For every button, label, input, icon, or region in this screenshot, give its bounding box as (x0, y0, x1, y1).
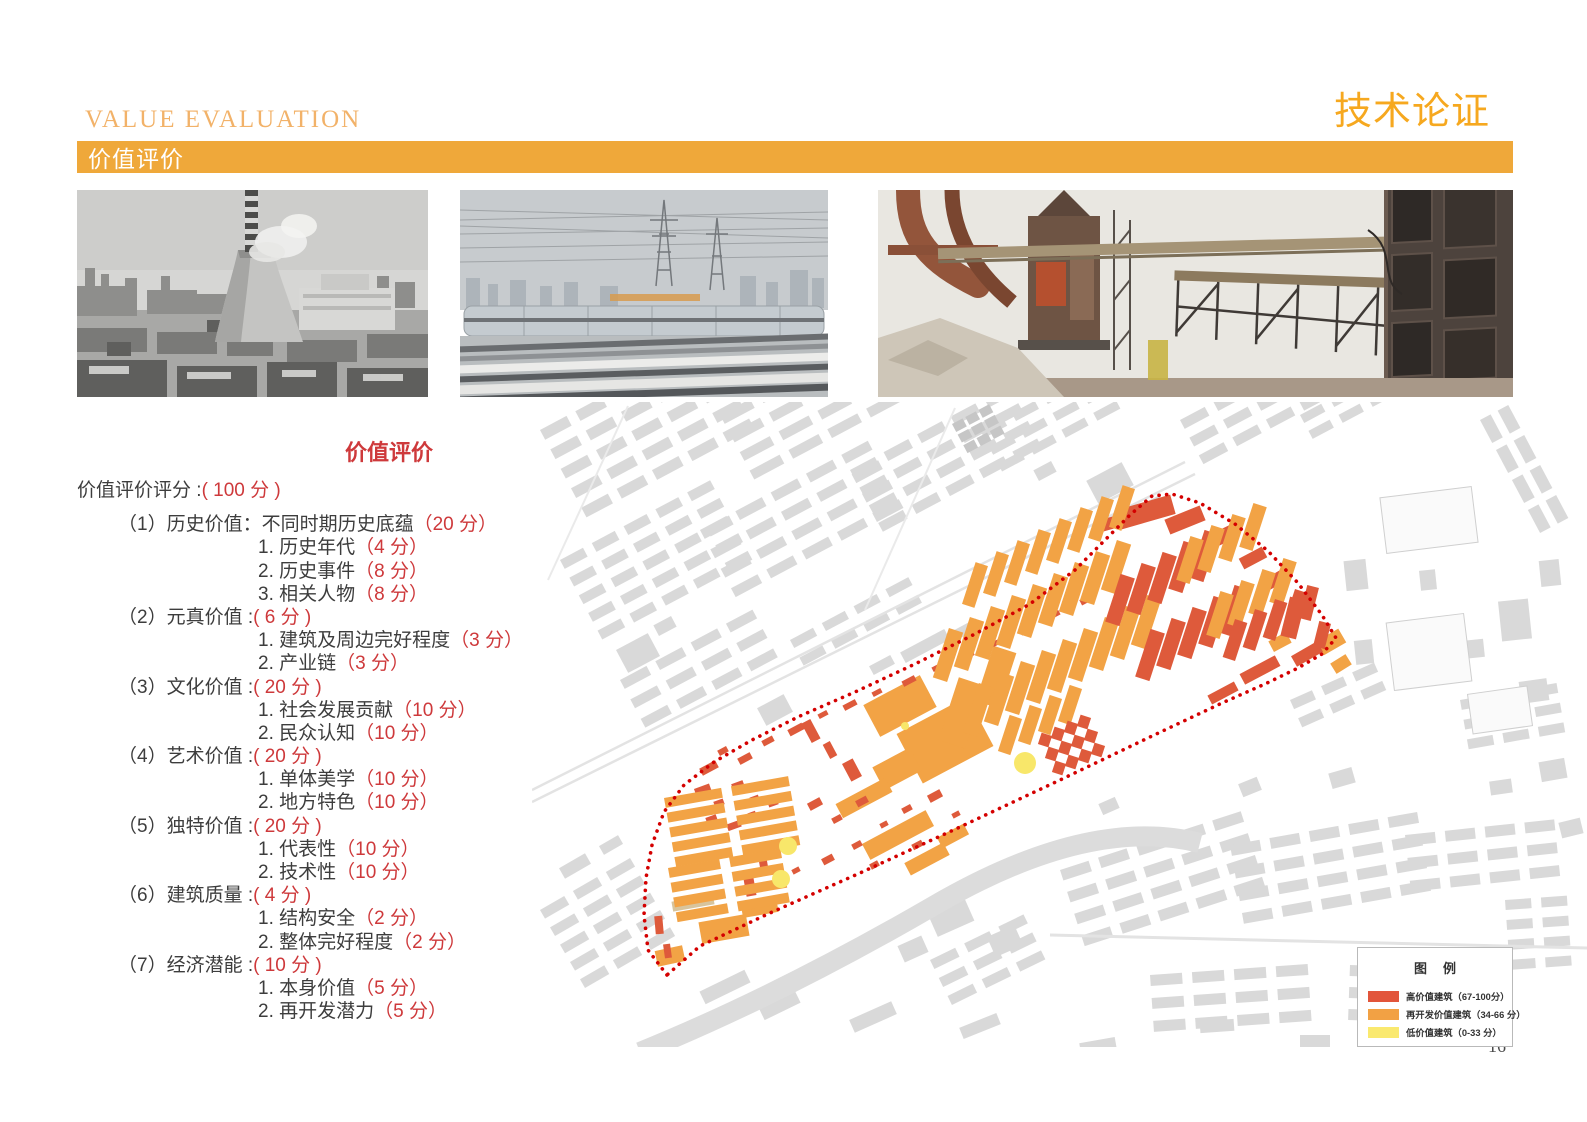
criteria-line-score: ( 20 分 ) (253, 677, 322, 698)
valued-building-strip (1091, 743, 1105, 758)
map-legend-title: 图例 (1358, 958, 1512, 977)
criteria-line-score: （5 分） (374, 1001, 447, 1022)
city-building (559, 853, 591, 878)
criteria-line-label: 1. 单体美学 (258, 769, 355, 790)
valued-building (901, 804, 913, 814)
criteria-line-score: ( 4 分 ) (253, 885, 311, 906)
criteria-line-label: （3）文化价值 : (118, 677, 253, 698)
valued-building (927, 789, 943, 803)
valued-building-strip (998, 715, 1022, 755)
slide-page: VALUE EVALUATION 技术论证 价值评价 (0, 0, 1587, 1122)
criteria-line: 2. 再开发潜力（5 分） (77, 1000, 523, 1023)
criteria-line: 1. 社会发展贡献（10 分） (77, 699, 523, 722)
legend-label: 再开发价值建筑（34-66 分） (1406, 1007, 1525, 1021)
criteria-title: 价值评价 (345, 435, 433, 467)
criteria-line-score: （4 分） (355, 537, 428, 558)
criteria-line: 2. 技术性（10 分） (77, 861, 523, 884)
valued-building (654, 916, 664, 935)
header-eyebrow: VALUE EVALUATION (85, 106, 361, 134)
valued-building (817, 710, 828, 719)
valued-building-strip (1052, 761, 1066, 776)
criteria-line-score: （8 分） (355, 584, 428, 605)
legend-color-swatch (1368, 1009, 1399, 1020)
city-building (1538, 758, 1567, 782)
city-building (1558, 818, 1583, 839)
low-value-building-marker (901, 722, 909, 730)
city-building (1539, 559, 1562, 587)
criteria-line-label: 1. 本身价值 (258, 978, 355, 999)
valued-building-strip (1067, 507, 1093, 553)
criteria-line: 2. 地方特色（10 分） (77, 791, 523, 814)
city-building (1354, 639, 1374, 665)
valued-building (823, 741, 838, 759)
valued-building-strip (1077, 715, 1091, 730)
city-block (540, 858, 675, 988)
city-open-block (1386, 614, 1472, 691)
city-block (1180, 402, 1329, 464)
valued-building (698, 914, 749, 944)
criteria-line-score: （3 分） (450, 630, 523, 651)
criteria-line: 3. 相关人物（8 分） (77, 583, 523, 606)
city-building (1419, 569, 1437, 591)
criteria-line-label: 2. 再开发潜力 (258, 1001, 374, 1022)
criteria-line-score: （10 分） (336, 839, 419, 860)
valued-building-strip (1046, 518, 1072, 564)
city-open-block (1380, 487, 1478, 554)
criteria-line: 2. 产业链（3 分） (77, 652, 523, 675)
criteria-line-label: 价值评价评分 : (77, 480, 202, 501)
criteria-line: 1. 本身价值（5 分） (77, 977, 523, 1000)
city-building (1200, 1019, 1235, 1033)
city-building (869, 655, 895, 675)
valued-building (737, 752, 753, 765)
city-building (849, 1001, 897, 1032)
city-building (959, 1013, 1001, 1039)
city-building (599, 835, 623, 855)
criteria-line-score: （3 分） (336, 653, 409, 674)
legend-label: 高价值建筑（67-100分） (1406, 989, 1509, 1003)
city-building (1489, 779, 1513, 796)
valued-building (807, 797, 823, 811)
valued-building-strip (1025, 529, 1051, 575)
criteria-line-score: （2 分） (355, 908, 428, 929)
map-legend-items: 高价值建筑（67-100分）再开发价值建筑（34-66 分）低价值建筑（0-33… (1358, 987, 1512, 1041)
criteria-line-score: ( 100 分 ) (202, 480, 281, 501)
valued-building (791, 866, 800, 874)
legend-row: 高价值建筑（67-100分） (1358, 987, 1512, 1005)
criteria-line-label: （1）历史价值：不同时期历史底蕴 (118, 514, 414, 535)
page-corner-title: 技术论证 (1334, 80, 1490, 135)
criteria-line-label: 2. 地方特色 (258, 792, 355, 813)
valued-building (851, 840, 863, 850)
criteria-line-score: （10 分） (355, 723, 438, 744)
low-value-building-marker (772, 870, 790, 888)
valued-building-strip (1084, 729, 1098, 744)
criteria-line-label: 1. 结构安全 (258, 908, 355, 929)
criteria-line-label: 1. 建筑及周边完好程度 (258, 630, 450, 651)
valued-building (801, 719, 820, 743)
criteria-line: 2. 民众认知（10 分） (77, 722, 523, 745)
criteria-line-score: ( 20 分 ) (253, 816, 322, 837)
valued-building (842, 699, 857, 711)
criteria-line: （2）元真价值 :( 6 分 ) (77, 606, 523, 629)
criteria-line-score: （8 分） (355, 561, 428, 582)
criteria-line-label: 1. 代表性 (258, 839, 336, 860)
criteria-line-score: （10 分） (336, 862, 419, 883)
criteria-line-label: 3. 相关人物 (258, 584, 355, 605)
city-block (540, 402, 754, 517)
rail-yard-illustration (460, 190, 828, 397)
section-banner-label: 价值评价 (88, 140, 184, 174)
city-building (616, 633, 660, 673)
valued-building-strip (1018, 705, 1042, 745)
valued-building (821, 854, 835, 866)
criteria-line: （6）建筑质量 :( 4 分 ) (77, 884, 523, 907)
valued-building-strip (1065, 755, 1079, 770)
valued-building-strip (1243, 609, 1268, 651)
city-building (1343, 559, 1368, 591)
photo-rail-yard (460, 190, 828, 397)
valued-building-strip (1071, 735, 1085, 750)
criteria-line: 价值评价评分 :( 100 分 ) (77, 479, 523, 502)
valued-building (1330, 654, 1352, 674)
legend-color-swatch (1368, 1027, 1399, 1038)
industrial-plant-illustration (878, 190, 1513, 397)
criteria-line-label: （4）艺术价值 : (118, 746, 253, 767)
city-building (1498, 599, 1532, 642)
legend-row: 低价值建筑（0-33 分） (1358, 1023, 1512, 1041)
valued-building (1207, 682, 1238, 705)
city-building (1033, 461, 1056, 481)
city-building (653, 616, 676, 636)
valued-building (879, 820, 888, 828)
criteria-line: 2. 整体完好程度（2 分） (77, 931, 523, 954)
valued-building (911, 840, 924, 850)
criteria-line-label: 2. 整体完好程度 (258, 932, 393, 953)
valued-building (761, 736, 774, 747)
criteria-line: （4）艺术价值 :( 20 分 ) (77, 745, 523, 768)
criteria-line: （7）经济潜能 :( 10 分 ) (77, 954, 523, 977)
legend-color-swatch (1368, 991, 1399, 1002)
city-block (1480, 405, 1568, 533)
valued-building-strip (1045, 747, 1059, 762)
valued-building (937, 824, 969, 849)
city-block (1300, 402, 1424, 439)
map-legend: 图例 高价值建筑（67-100分）再开发价值建筑（34-66 分）低价值建筑（0… (1357, 947, 1513, 1047)
criteria-line: 2. 历史事件（8 分） (77, 560, 523, 583)
section-banner: 价值评价 (77, 141, 1513, 173)
criteria-line: 1. 单体美学（10 分） (77, 768, 523, 791)
low-value-building-marker (779, 837, 797, 855)
legend-label: 低价值建筑（0-33 分） (1406, 1025, 1502, 1039)
criteria-line-label: 2. 技术性 (258, 862, 336, 883)
city-building (1238, 777, 1262, 797)
valued-building-strip (983, 551, 1009, 597)
city-block (620, 610, 778, 728)
criteria-line-label: 2. 历史事件 (258, 561, 355, 582)
criteria-line-score: ( 10 分 ) (253, 955, 322, 976)
city-building (1098, 797, 1119, 815)
criteria-line-label: （2）元真价值 : (118, 607, 253, 628)
photo-industrial-plant (878, 190, 1513, 397)
valued-building-strip (1004, 540, 1030, 586)
city-block (1230, 812, 1431, 924)
city-block (1405, 819, 1560, 891)
valued-building-strip (1051, 727, 1065, 742)
valued-building-strip (1058, 741, 1072, 756)
valued-building (871, 688, 882, 697)
criteria-line-score: ( 20 分 ) (253, 746, 322, 767)
brick-building-icon (1386, 190, 1513, 391)
criteria-line: （5）独特价值 :( 20 分 ) (77, 815, 523, 838)
city-block (1505, 896, 1572, 970)
tanker-train-icon (464, 306, 824, 336)
criteria-list: 价值评价评分 :( 100 分 )（1）历史价值：不同时期历史底蕴（20 分）1… (77, 479, 523, 1023)
valued-building-strip (1239, 503, 1267, 551)
city-open-block (1468, 686, 1533, 734)
valued-building (831, 814, 843, 824)
city-building (897, 935, 928, 962)
criteria-line-score: （20 分） (414, 514, 497, 535)
photo-cooling-tower-cityscape (77, 190, 428, 397)
valued-building-strip (1078, 749, 1092, 764)
criteria-line-score: （2 分） (393, 932, 466, 953)
criteria-line-label: 2. 民众认知 (258, 723, 355, 744)
criteria-line-label: （5）独特价值 : (118, 816, 253, 837)
city-building (1079, 1037, 1117, 1047)
criteria-line: 1. 结构安全（2 分） (77, 907, 523, 930)
criteria-line: （3）文化价值 :( 20 分 ) (77, 676, 523, 699)
valued-building (842, 758, 862, 781)
cooling-tower-illustration (77, 190, 428, 397)
city-building (1300, 1035, 1330, 1047)
criteria-line-score: （10 分） (355, 792, 438, 813)
criteria-line-score: （5 分） (355, 978, 428, 999)
criteria-line: 1. 代表性（10 分） (77, 838, 523, 861)
criteria-line-label: （7）经济潜能 : (118, 955, 253, 976)
criteria-line: 1. 建筑及周边完好程度（3 分） (77, 629, 523, 652)
criteria-line-score: ( 6 分 ) (253, 607, 311, 628)
valued-building (951, 810, 960, 818)
criteria-line-score: （10 分） (355, 769, 438, 790)
criteria-line-score: （10 分） (393, 700, 476, 721)
criteria-line: （1）历史价值：不同时期历史底蕴（20 分） (77, 513, 523, 536)
low-value-building-marker (1014, 752, 1036, 774)
criteria-line: 1. 历史年代（4 分） (77, 536, 523, 559)
valued-building-strip (962, 562, 988, 608)
criteria-line-label: 1. 历史年代 (258, 537, 355, 558)
criteria-line-label: 2. 产业链 (258, 653, 336, 674)
legend-row: 再开发价值建筑（34-66 分） (1358, 1005, 1512, 1023)
criteria-line-label: （6）建筑质量 : (118, 885, 253, 906)
city-building (1328, 767, 1355, 789)
criteria-line-label: 1. 社会发展贡献 (258, 700, 393, 721)
valued-building (1239, 547, 1268, 570)
valued-building (862, 810, 934, 860)
